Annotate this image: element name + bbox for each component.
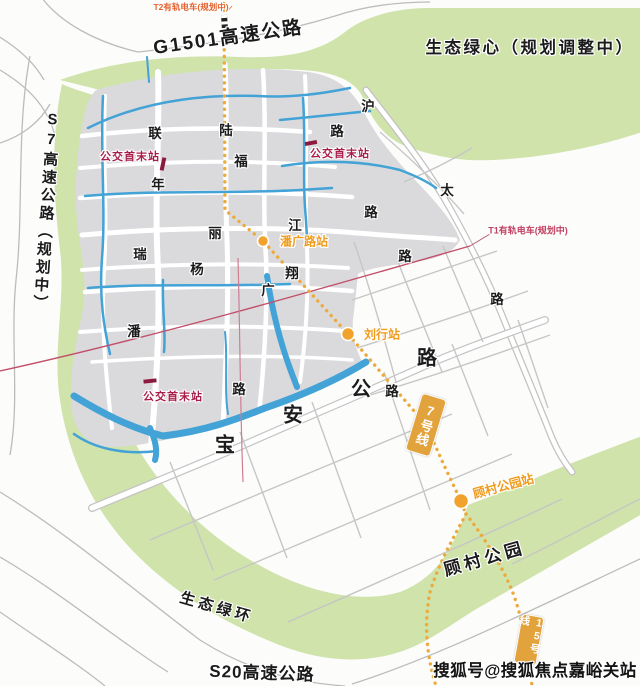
road-char: 路 <box>364 201 378 221</box>
panguang-station-label: 潘广路站 <box>280 233 328 250</box>
road-char: 瑞 <box>133 243 147 263</box>
baoan-road-char: 宝 <box>215 429 235 458</box>
road-char: 太 <box>440 179 454 199</box>
road-char: 联 <box>148 122 162 142</box>
label-eco-green-heart: 生态绿心（规划调整中） <box>426 34 635 58</box>
bus-terminal-label: 公交首末站 <box>100 148 160 164</box>
road-char: 路 <box>398 245 412 265</box>
road-char: 路 <box>490 288 504 308</box>
road-char: 路 <box>232 378 246 398</box>
t2-tram-label: T2有轨电车(规划中) <box>153 1 228 13</box>
road-char: 路 <box>330 120 344 140</box>
sohu-watermark: 搜狐号@搜狐焦点嘉峪关站 <box>433 657 637 681</box>
road-char: 广 <box>261 279 275 299</box>
liuhang-station-dot <box>342 328 355 341</box>
bus-terminal-label: 公交首末站 <box>310 145 370 161</box>
planning-map: G1501高速公路 生态绿心（规划调整中） S7高速公路（规划中） S20高速公… <box>0 0 640 686</box>
road-char: 路 <box>385 380 399 400</box>
road-char: 丽 <box>208 222 222 242</box>
baoan-road-char: 公 <box>351 373 371 402</box>
liuhang-station-label: 刘行站 <box>364 326 400 343</box>
map-graphic <box>0 0 640 686</box>
road-char: 江 <box>288 214 302 234</box>
road-char: 潘 <box>127 320 141 340</box>
road-char: 翔 <box>285 262 299 282</box>
road-char: 年 <box>151 173 165 193</box>
baoan-road-char: 安 <box>283 399 303 428</box>
gucun-park-station-dot <box>454 494 469 509</box>
road-char: 杨 <box>190 258 204 278</box>
baoan-road-char: 路 <box>417 342 437 371</box>
t1-tram-label: T1有轨电车(规划中) <box>488 224 568 237</box>
road-char: 沪 <box>361 95 375 115</box>
panguang-station-dot <box>258 236 269 247</box>
bus-terminal-label: 公交首末站 <box>143 388 203 404</box>
road-char: 福 <box>234 150 248 170</box>
label-s20-highway: S20高速公路 <box>209 657 315 686</box>
road-char: 陆 <box>219 119 233 139</box>
